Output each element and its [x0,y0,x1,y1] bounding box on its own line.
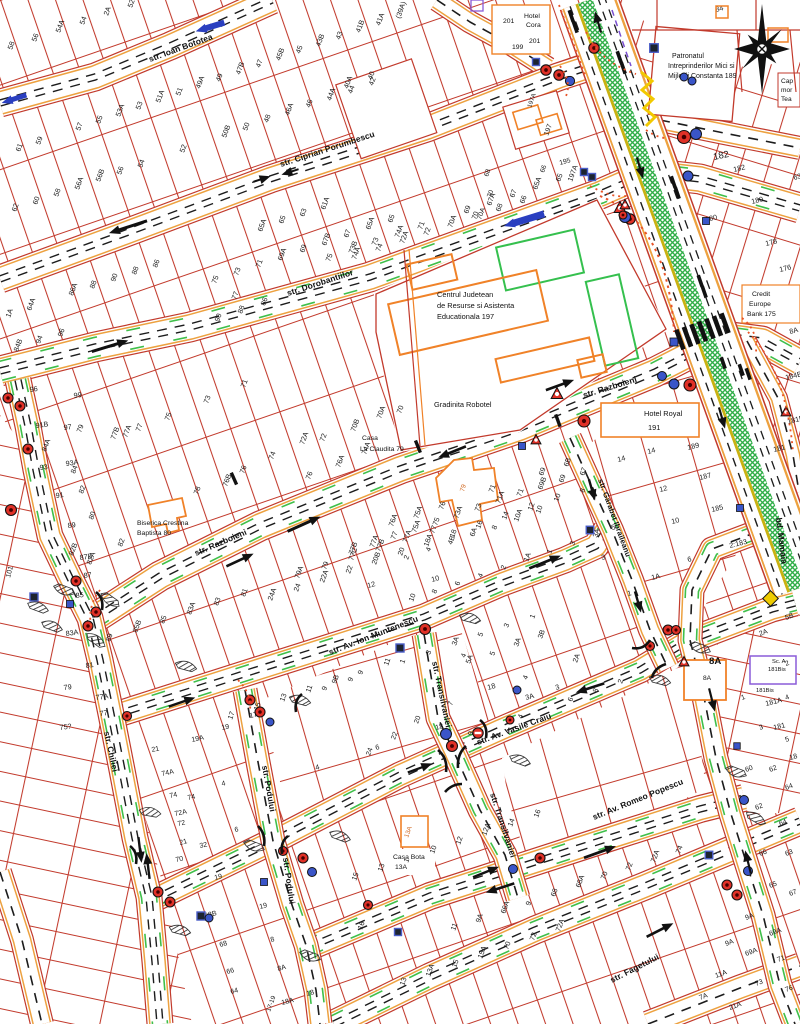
svg-text:8A: 8A [709,656,721,667]
svg-text:87: 87 [83,570,92,580]
svg-text:Gradinita Robotel: Gradinita Robotel [434,400,492,409]
svg-text:201: 201 [503,18,515,25]
svg-text:181Bis: 181Bis [756,688,774,694]
svg-text:75?: 75? [59,721,72,732]
svg-text:Educationala 197: Educationala 197 [437,312,494,321]
svg-text:87B: 87B [79,551,93,562]
svg-text:181Bis: 181Bis [768,667,786,673]
svg-text:mor: mor [781,87,793,94]
svg-text:Baptista 80: Baptista 80 [137,530,171,537]
svg-text:Tea: Tea [781,96,792,103]
svg-text:Cap: Cap [781,78,793,85]
svg-text:93A: 93A [65,457,79,468]
svg-text:77A: 77A [95,691,109,702]
svg-text:191: 191 [648,423,660,432]
svg-text:83A: 83A [65,627,79,638]
svg-text:77: 77 [99,708,108,718]
svg-text:Intreprinderilor Mici si: Intreprinderilor Mici si [668,63,735,70]
svg-text:91B: 91B [35,419,49,430]
svg-text:de Resurse si Asistenta: de Resurse si Asistenta [437,301,515,310]
svg-text:Mijlocii Constanta 189: Mijlocii Constanta 189 [668,73,737,80]
svg-text:Patronatul: Patronatul [672,53,704,60]
svg-text:8A: 8A [703,675,712,682]
svg-text:199: 199 [512,44,524,51]
svg-text:Bank 175: Bank 175 [747,311,776,318]
svg-text:Centrul Judetean: Centrul Judetean [437,290,493,299]
svg-text:Credit: Credit [752,291,770,298]
svg-text:Hotel Royal: Hotel Royal [644,409,683,418]
svg-text:93: 93 [39,462,48,472]
svg-text:89: 89 [67,520,76,530]
svg-text:13A: 13A [395,864,408,871]
svg-text:97: 97 [63,422,72,432]
svg-text:Biserica Crestina: Biserica Crestina [137,520,189,527]
svg-text:96: 96 [29,384,38,394]
svg-text:Cora: Cora [526,22,541,29]
svg-text:Hotel: Hotel [524,13,540,20]
svg-text:81: 81 [85,660,94,670]
svg-text:85: 85 [75,590,84,600]
svg-text:99: 99 [73,390,82,400]
svg-text:201: 201 [529,38,541,45]
svg-text:Europe: Europe [749,301,771,308]
svg-text:91: 91 [55,490,64,500]
svg-text:79: 79 [63,682,72,692]
